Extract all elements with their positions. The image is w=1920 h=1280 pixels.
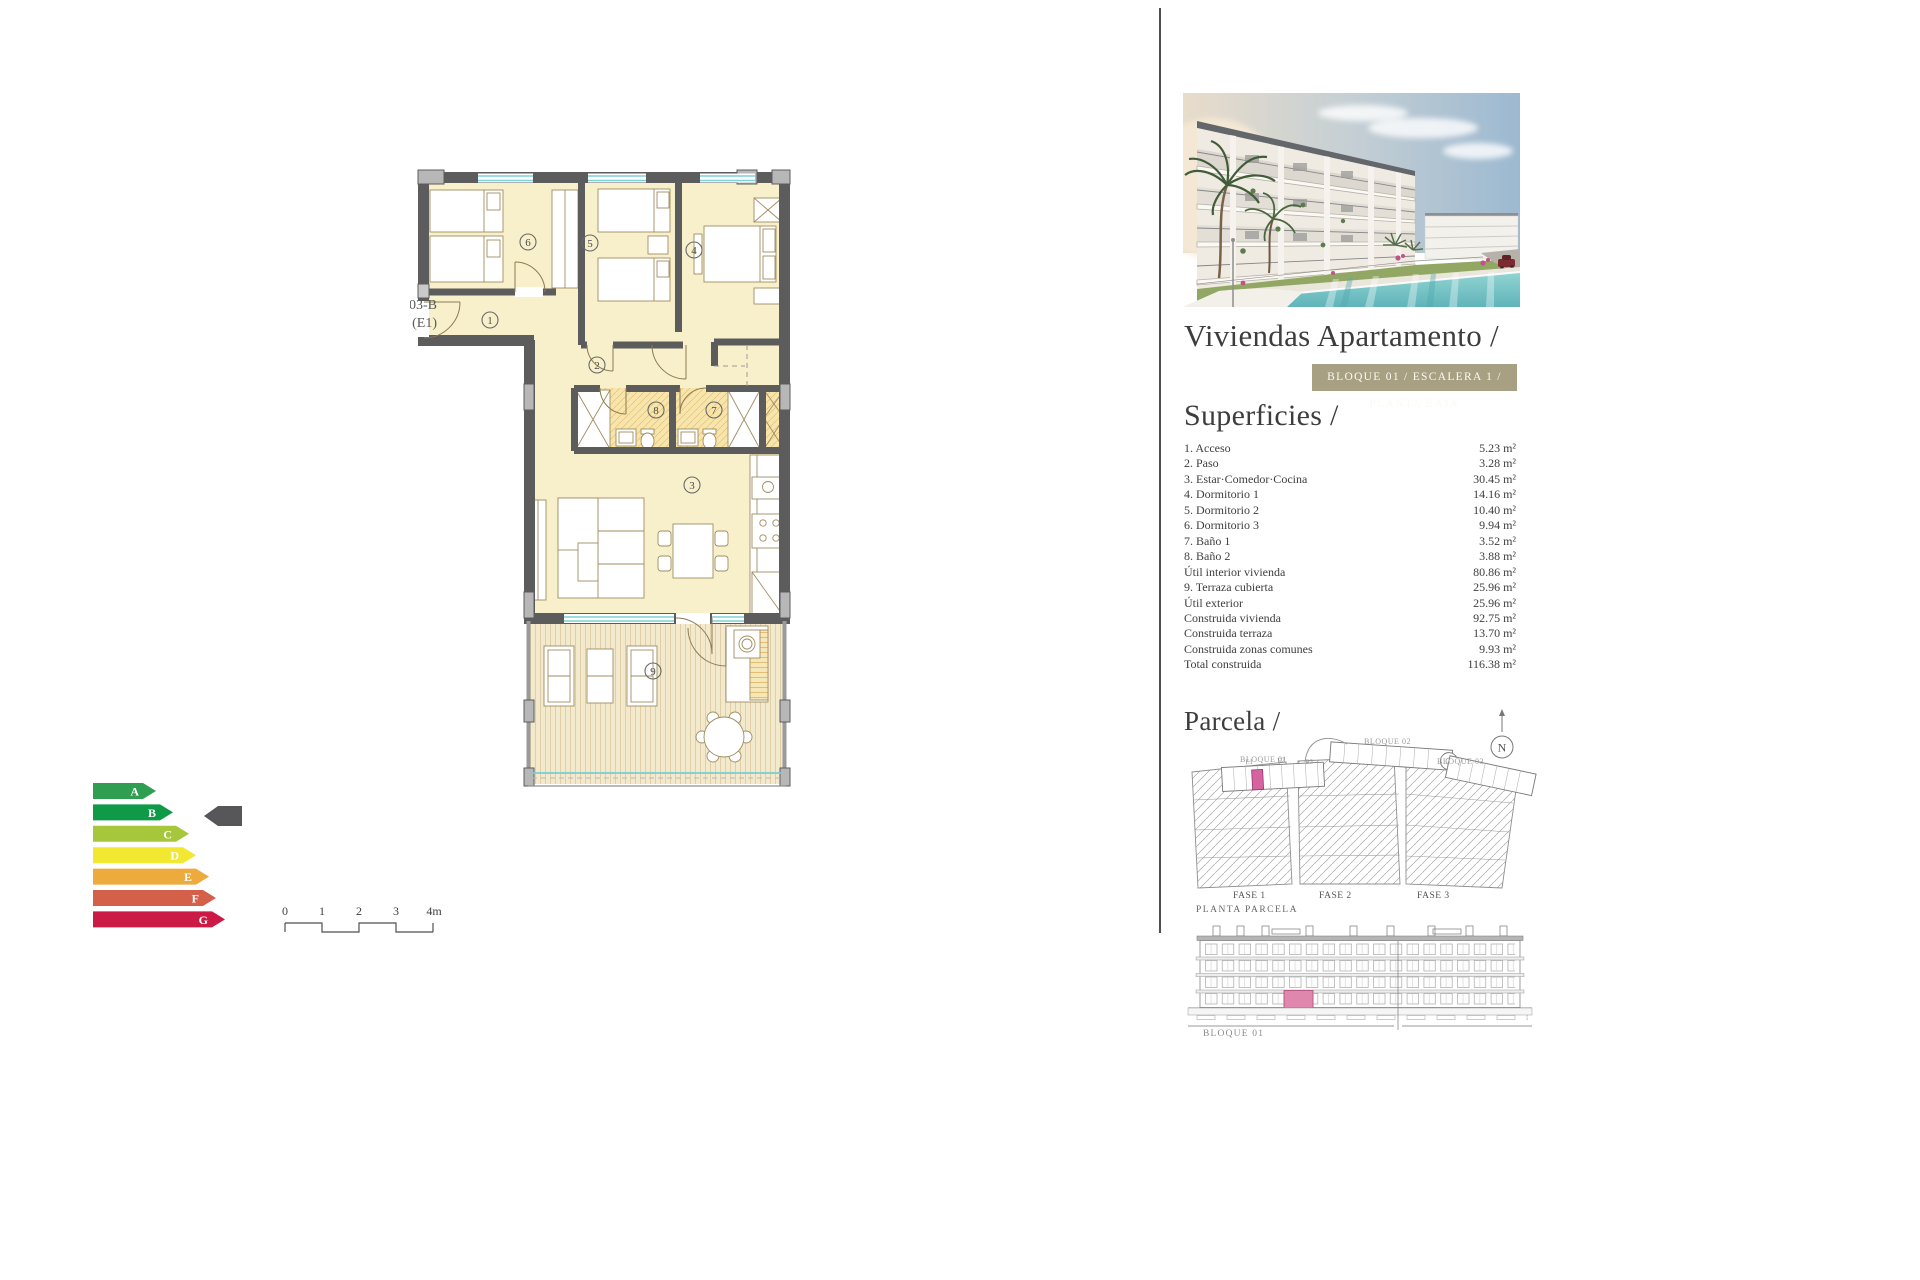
- bloque-label: BLOQUE 03: [1437, 757, 1484, 766]
- energy-bar-d: D: [93, 847, 196, 863]
- bloque-label: BLOQUE 01: [1240, 755, 1287, 764]
- floor-slab: [1196, 974, 1524, 977]
- energy-bar-b: B: [93, 804, 173, 820]
- svg-text:G: G: [199, 913, 208, 927]
- svg-text:5: 5: [587, 238, 593, 250]
- scale-tick: 0: [282, 904, 288, 918]
- svg-text:9: 9: [650, 666, 656, 678]
- svg-text:N: N: [1498, 741, 1507, 755]
- energy-bar-g: G: [93, 911, 225, 927]
- svg-text:E: E: [184, 870, 192, 884]
- svg-text:C: C: [163, 827, 172, 841]
- svg-text:4: 4: [691, 245, 697, 257]
- escalera-label: E3: [1305, 758, 1314, 766]
- svg-text:8: 8: [653, 405, 659, 417]
- scale-tick: 1: [319, 904, 325, 918]
- superficie-row: Construida vivienda92.75 m²: [1184, 611, 1516, 626]
- energy-bar-c: C: [93, 826, 189, 842]
- energy-bar-a: A: [93, 783, 156, 799]
- energy-bar-f: F: [93, 890, 216, 906]
- scale-tick: 3: [393, 904, 399, 918]
- fase-label: FASE 1: [1233, 891, 1266, 901]
- brochure-page: { "header": { "title": "Viviendas Aparta…: [0, 0, 1920, 1280]
- superficie-row: 4. Dormitorio 114.16 m²: [1184, 487, 1516, 502]
- floor-slab: [1196, 990, 1524, 993]
- svg-text:A: A: [130, 785, 139, 799]
- superficie-row: 8. Baño 23.88 m²: [1184, 549, 1516, 564]
- highlighted-unit: [1284, 991, 1313, 1009]
- energy-rating-chart: A B C D E F G: [90, 780, 250, 935]
- highlighted-unit: [1252, 769, 1264, 790]
- superficie-row: Útil exterior25.96 m²: [1184, 596, 1516, 611]
- scale-tick: 2: [356, 904, 362, 918]
- svg-text:B: B: [148, 806, 156, 820]
- page-title: Viviendas Apartamento /: [1184, 318, 1499, 354]
- superficie-row: Construida terraza13.70 m²: [1184, 626, 1516, 641]
- roof-slab: [1197, 936, 1523, 941]
- scale-line: [285, 923, 433, 932]
- svg-text:1: 1: [487, 315, 493, 327]
- chimneys: [1213, 926, 1507, 936]
- site-plan: N E1 E2 E3: [1185, 700, 1545, 915]
- superficie-row: 6. Dormitorio 39.94 m²: [1184, 518, 1516, 533]
- superficie-row: 9. Terraza cubierta25.96 m²: [1184, 580, 1516, 595]
- superficie-row: Total construida116.38 m²: [1184, 657, 1516, 672]
- scale-bar: 0 1 2 3 4m: [272, 898, 447, 940]
- energy-indicator-arrow: [204, 806, 242, 826]
- superficies-heading: Superficies /: [1184, 399, 1339, 433]
- svg-text:F: F: [192, 892, 199, 906]
- fase-label: FASE 3: [1417, 891, 1450, 901]
- floor-plan: 1 2 3 4 5 6 7 8 9 AP-03-B (E1): [410, 162, 802, 804]
- svg-text:2: 2: [594, 360, 600, 372]
- svg-text:AP-03-B: AP-03-B: [410, 298, 437, 313]
- superficie-row: Útil interior vivienda80.86 m²: [1184, 565, 1516, 580]
- svg-text:7: 7: [711, 405, 717, 417]
- location-badge: BLOQUE 01 / ESCALERA 1 / PLANTA BAJA: [1312, 364, 1517, 391]
- vertical-divider: [1159, 8, 1161, 933]
- fase-label: FASE 2: [1319, 891, 1352, 901]
- superficie-row: 5. Dormitorio 210.40 m²: [1184, 503, 1516, 518]
- superficie-row: 2. Paso3.28 m²: [1184, 456, 1516, 471]
- elevation-caption: BLOQUE 01: [1203, 1029, 1264, 1039]
- svg-text:D: D: [170, 849, 179, 863]
- building-photo: [1183, 93, 1520, 307]
- floor-slab: [1196, 957, 1524, 960]
- superficies-list: 1. Acceso5.23 m² 2. Paso3.28 m² 3. Estar…: [1184, 441, 1516, 673]
- superficie-row: 3. Estar·Comedor·Cocina30.45 m²: [1184, 472, 1516, 487]
- compass-icon: N: [1491, 709, 1513, 758]
- scale-tick: 4m: [426, 904, 442, 918]
- svg-text:(E1): (E1): [412, 316, 437, 331]
- site-plan-caption: PLANTA PARCELA: [1196, 905, 1298, 915]
- bloque-label: BLOQUE 02: [1364, 737, 1411, 746]
- energy-bar-e: E: [93, 869, 209, 885]
- svg-text:3: 3: [689, 480, 695, 492]
- building-elevation: BLOQUE 01: [1185, 920, 1543, 1040]
- superficie-row: 1. Acceso5.23 m²: [1184, 441, 1516, 456]
- svg-text:6: 6: [525, 237, 531, 249]
- superficie-row: 7. Baño 13.52 m²: [1184, 534, 1516, 549]
- superficie-row: Construida zonas comunes9.93 m²: [1184, 642, 1516, 657]
- kitchen-counter: [750, 455, 784, 615]
